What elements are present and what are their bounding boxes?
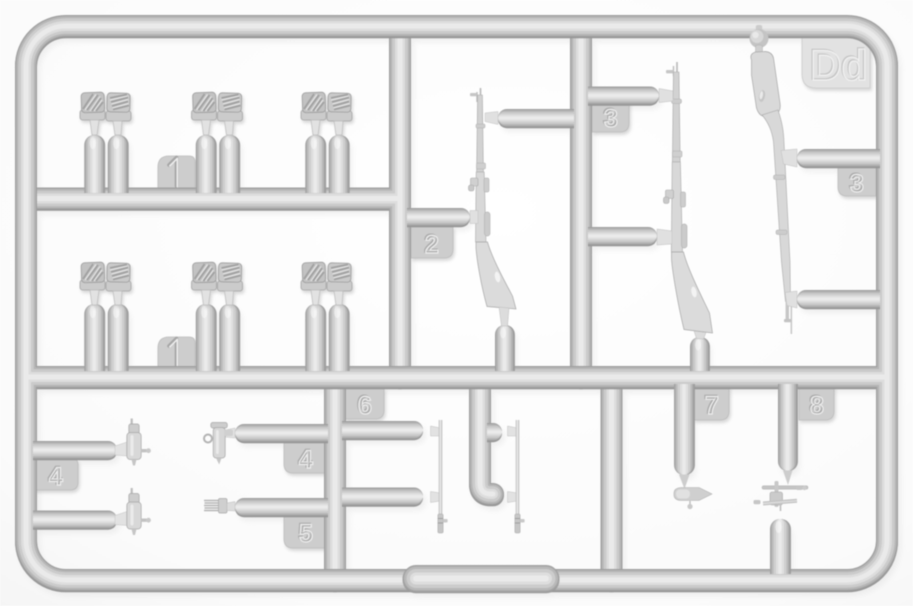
svg-text:Dd: Dd [810, 42, 867, 90]
svg-text:6: 6 [358, 392, 372, 420]
svg-text:3: 3 [850, 170, 864, 198]
svg-text:7: 7 [705, 392, 719, 420]
svg-text:4: 4 [299, 446, 313, 474]
svg-text:2: 2 [425, 231, 439, 259]
svg-text:4: 4 [49, 463, 63, 491]
svg-text:3: 3 [604, 105, 618, 133]
svg-text:5: 5 [299, 520, 313, 548]
svg-text:8: 8 [810, 392, 824, 420]
